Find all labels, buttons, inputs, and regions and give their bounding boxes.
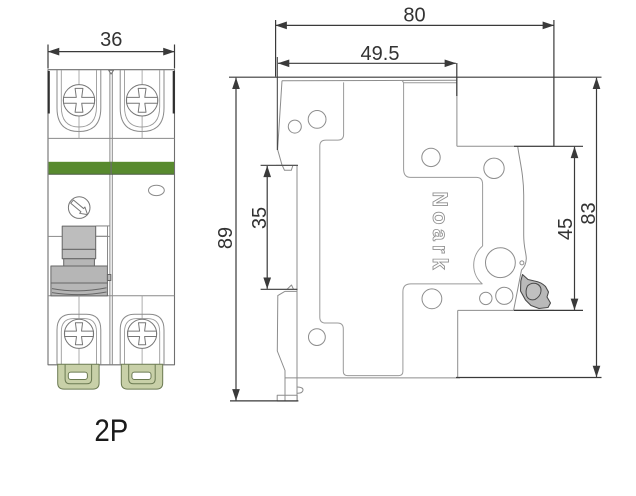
- svg-text:Noark: Noark: [428, 192, 452, 274]
- svg-text:35: 35: [249, 207, 271, 229]
- svg-text:80: 80: [403, 4, 425, 26]
- svg-text:83: 83: [578, 202, 600, 224]
- svg-text:49.5: 49.5: [361, 43, 400, 65]
- svg-text:2P: 2P: [94, 413, 128, 448]
- svg-text:89: 89: [215, 227, 237, 249]
- svg-text:45: 45: [555, 218, 577, 240]
- svg-text:36: 36: [100, 29, 122, 51]
